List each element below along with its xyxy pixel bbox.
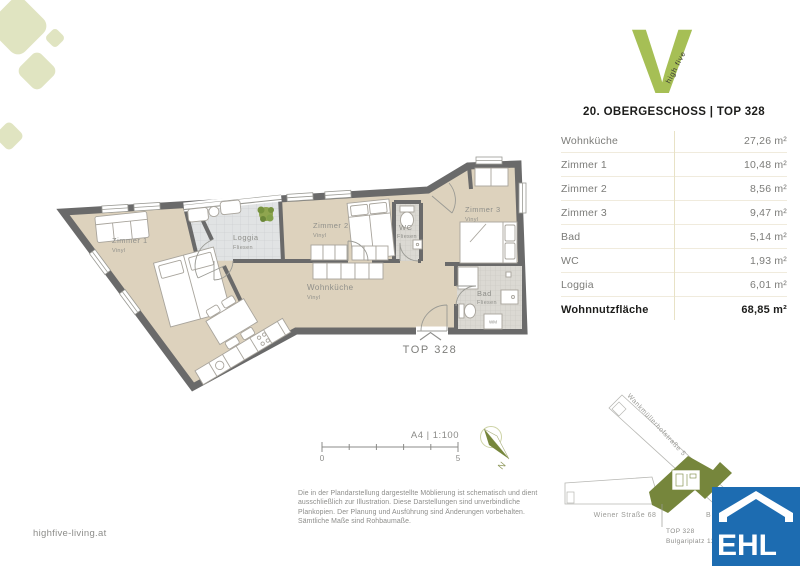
deco-diamond	[16, 50, 58, 92]
street-label-fragment: B	[706, 512, 711, 519]
ehl-logo: EHL	[712, 487, 800, 566]
window-icon	[519, 183, 526, 213]
scale-end-label: 5	[456, 454, 461, 463]
deco-diamond	[0, 0, 51, 59]
room-name: WC	[561, 255, 579, 267]
window-icon	[325, 190, 351, 199]
washing-machine-label: WM	[489, 320, 497, 325]
scale-start-label: 0	[320, 454, 325, 463]
scale-format-label: A4 | 1:100	[411, 430, 459, 441]
window-icon	[287, 193, 313, 202]
highfive-logo: V high five	[631, 11, 692, 113]
room-label-wc: WC	[399, 223, 413, 232]
floorplan-page: V high five	[0, 0, 800, 566]
room-name: Bad	[561, 231, 580, 243]
compass-north-label: N	[496, 460, 508, 471]
wardrobe-zimmer3	[475, 168, 508, 186]
room-floor-bad: Fliesen	[477, 300, 497, 306]
area-table: Wohnküche 27,26 m² Zimmer 1 10,48 m² Zim…	[561, 129, 787, 322]
north-compass-icon: N	[481, 427, 510, 472]
site-building-horizontal	[565, 477, 660, 504]
room-floor-zimmer1: Vinyl	[112, 248, 125, 254]
room-name: Zimmer 3	[561, 207, 607, 219]
site-building-courtyard	[672, 470, 700, 490]
room-area: 27,26 m²	[744, 135, 787, 147]
room-area: 9,47 m²	[750, 207, 787, 219]
room-floor-zimmer2: Vinyl	[313, 233, 326, 239]
room-label-zimmer3: Zimmer 3	[465, 205, 501, 214]
room-label-zimmer2: Zimmer 2	[313, 221, 349, 230]
deco-diamond	[44, 27, 65, 48]
kitchen-cabinets	[313, 263, 383, 279]
unit-label: TOP 328	[403, 344, 458, 356]
room-area: 1,93 m²	[750, 255, 787, 267]
room-floor-wohnkueche: Vinyl	[307, 295, 320, 301]
room-name: Zimmer 1	[561, 159, 607, 171]
room-area: 8,56 m²	[750, 183, 787, 195]
room-area: 6,01 m²	[750, 279, 787, 291]
website-link[interactable]: highfive-living.at	[33, 528, 107, 539]
room-label-bad: Bad	[477, 289, 492, 298]
scale-bar: A4 | 1:100 0 5	[320, 430, 461, 463]
room-name: Wohnküche	[561, 135, 618, 147]
total-value: 68,85 m²	[741, 304, 787, 316]
deco-diamonds	[0, 0, 66, 152]
page-title: 20. OBERGESCHOSS | TOP 328	[561, 106, 787, 118]
deco-diamond	[0, 120, 25, 151]
window-icon	[134, 202, 160, 211]
disclaimer: Die in der Plandarstellung dargestellte …	[298, 489, 538, 526]
street-label-horizontal: Wiener Straße 68	[594, 512, 657, 519]
room-floor-wc: Fliesen	[397, 234, 417, 240]
window-icon	[102, 204, 128, 213]
disclaimer-line: ausschließlich zur Illustration. Diese D…	[298, 498, 538, 507]
disclaimer-line: Sämtliche Maße sind Rohbaumaße.	[298, 517, 538, 526]
room-label-wohnkueche: Wohnküche	[307, 283, 354, 292]
disclaimer-line: Die in der Plandarstellung dargestellte …	[298, 489, 538, 498]
total-label: Wohnnutzfläche	[561, 304, 649, 316]
room-label-loggia: Loggia	[233, 233, 259, 242]
window-icon	[476, 157, 502, 164]
room-floor-loggia: Fliesen	[233, 245, 253, 251]
highfive-logo-v: V	[631, 11, 692, 113]
ehl-logo-text: EHL	[717, 529, 777, 563]
site-callout-address: Bulgariplatz 11	[666, 538, 715, 545]
table-divider	[674, 131, 675, 320]
site-callout-unit: TOP 328	[666, 528, 695, 535]
unit-callout: TOP 328	[403, 333, 458, 357]
room-name: Zimmer 2	[561, 183, 607, 195]
room-name: Loggia	[561, 279, 594, 291]
bed-zimmer3	[460, 222, 517, 263]
room-floor-zimmer3: Vinyl	[465, 217, 478, 223]
disclaimer-line: Plankopien. Der Planung und Ausführung s…	[298, 508, 538, 517]
room-label-zimmer1: Zimmer 1	[112, 236, 148, 245]
room-area: 5,14 m²	[750, 231, 787, 243]
room-area: 10,48 m²	[744, 159, 787, 171]
